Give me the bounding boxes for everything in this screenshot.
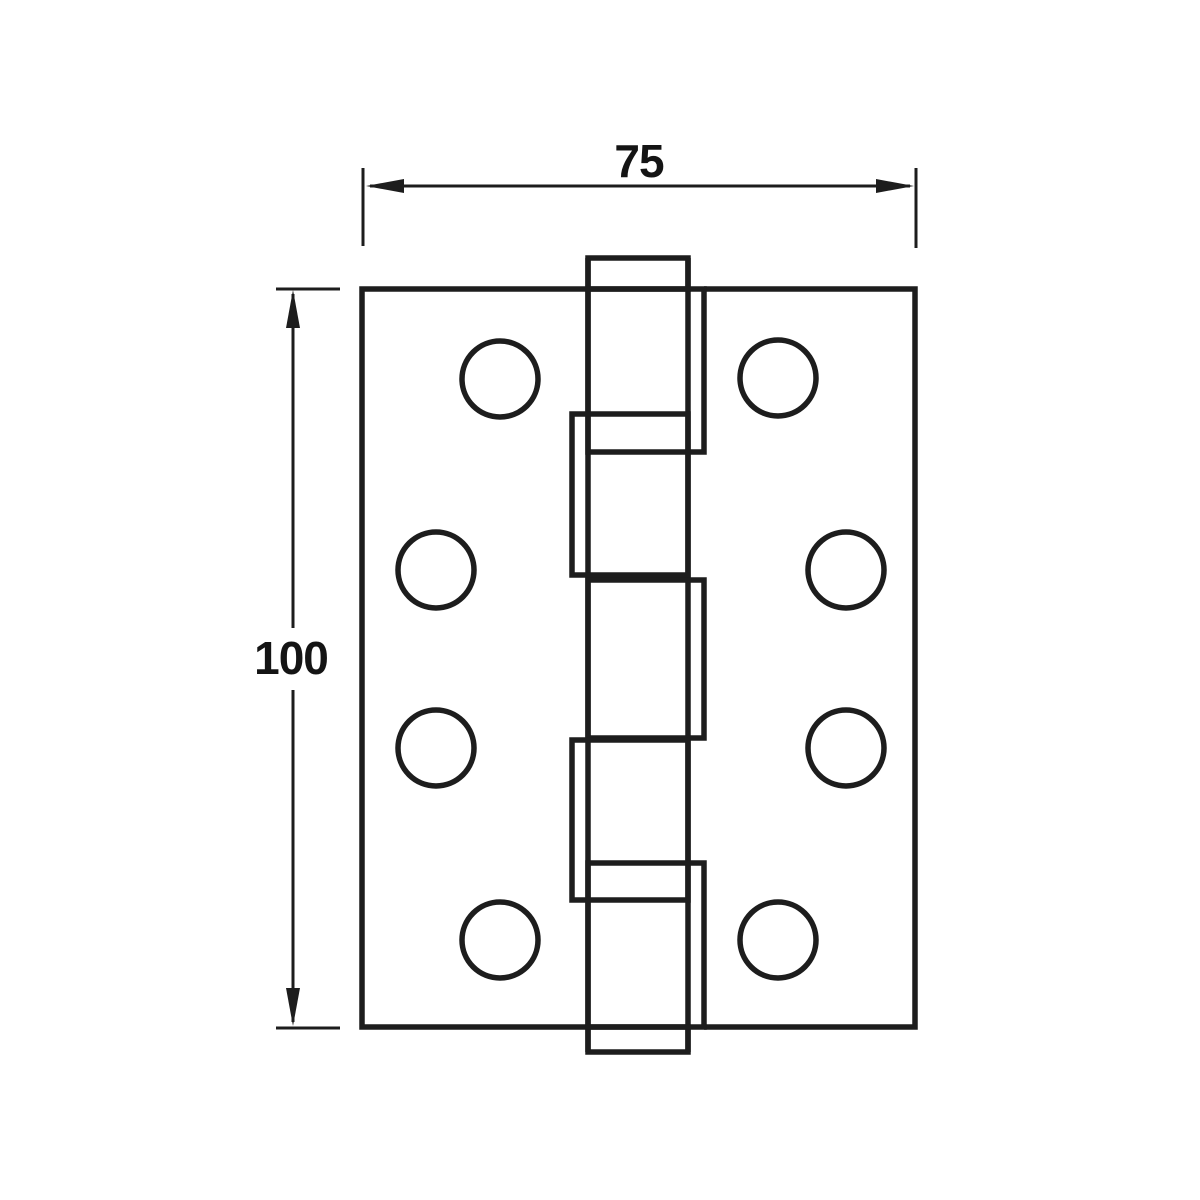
hinge-part	[362, 258, 915, 1052]
arrowhead-up-icon	[286, 290, 300, 328]
arrowhead-down-icon	[286, 988, 300, 1026]
arrowhead-right-icon	[876, 179, 914, 193]
hinge-technical-drawing: 75 100	[0, 0, 1200, 1200]
height-dimension-label: 100	[254, 632, 328, 684]
screw-hole	[398, 710, 474, 786]
width-dimension-label: 75	[614, 135, 664, 187]
screw-hole	[398, 532, 474, 608]
arrowhead-left-icon	[366, 179, 404, 193]
technical-drawing-page: 75 100	[0, 0, 1200, 1200]
height-dimension: 100	[254, 289, 340, 1028]
knuckle-cap-top	[588, 258, 688, 289]
screw-hole	[808, 710, 884, 786]
screw-hole	[808, 532, 884, 608]
knuckle-cap-bottom	[588, 1027, 688, 1052]
screw-hole	[740, 902, 816, 978]
screw-hole	[740, 340, 816, 416]
screw-hole	[462, 341, 538, 417]
left-leaf-outline	[362, 289, 588, 1027]
width-dimension: 75	[363, 135, 916, 248]
screw-hole	[462, 902, 538, 978]
